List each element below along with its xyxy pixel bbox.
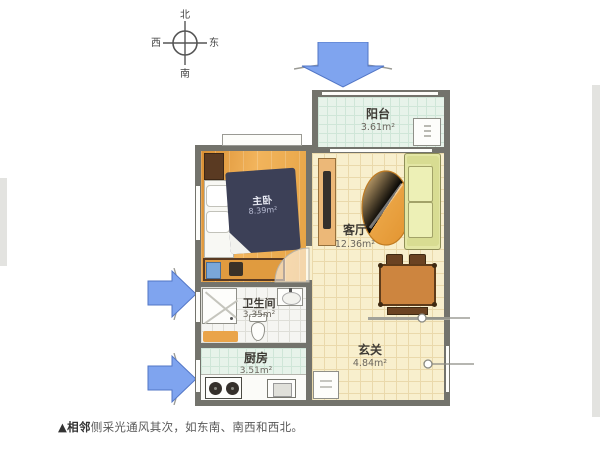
dresser-item-dark [229,262,243,276]
cabinet-mark [320,380,332,382]
wind-arrow-right-icon [146,353,200,405]
compass-south-label: 南 [180,67,190,80]
balcony-east-wall [444,90,450,153]
pillow [206,211,230,233]
table-knob [432,263,437,268]
table-knob [378,263,383,268]
foyer-label: 玄关 [340,344,400,357]
sofa-cushion [408,202,433,238]
bathroom-label: 卫生间 [230,297,288,310]
caption-text: ▲相邻侧采光通风其次，如东南、南西和西北。 [58,419,303,435]
caption-bold: 相邻 [67,420,91,434]
caption-rest: 侧采光通风其次，如东南、南西和西北。 [91,420,303,434]
bath-mat [203,331,238,342]
bathroom-area: 3.35m² [230,310,288,320]
compass-west-label: 西 [151,38,161,49]
kitchen-window [196,360,200,392]
burner [226,382,239,395]
floorplan-image: 北 南 东 西 主卧 [0,0,600,450]
bed-duvet: 主卧 8.39m² [225,168,301,255]
page-edge-right [592,85,600,417]
burner [209,382,222,395]
bathroom-window [196,292,200,322]
nightstand [204,153,224,180]
south-outer-wall [195,400,450,406]
door-swing-arc-icon [270,244,312,284]
compass-east-label: 东 [209,36,219,49]
washer-mark [424,125,431,127]
sofa [404,153,441,250]
kitchen-label: 厨房 [230,352,282,365]
bathroom-kitchen-wall [195,343,306,348]
washer-mark [424,135,431,137]
compass-icon: 北 南 东 西 [148,6,222,80]
washer-mark [424,130,431,132]
cabinet-mark [320,386,332,388]
foyer-area: 4.84m² [340,359,400,369]
shoe-cabinet [313,371,339,399]
compass-north-label: 北 [180,9,190,21]
blanket-fold [227,229,253,254]
tv [323,171,331,229]
dresser-item-blue [206,262,221,279]
sofa-armrest [407,156,438,164]
balcony-window [322,92,438,95]
balcony-area: 3.61m² [338,123,418,133]
bedroom-west-window [196,186,200,240]
table-knob [432,302,437,307]
sink-tap [289,288,292,292]
living-room-area: 12.36m² [320,240,390,250]
sink-basin [273,383,292,397]
caption-marker: ▲ [58,420,67,434]
balcony-label: 阳台 [338,108,418,121]
wind-arrow-right-icon [146,268,200,320]
sofa-cushion [408,166,433,202]
balcony-west-wall [312,90,318,153]
bedroom-bay-window [222,134,302,146]
kitchen-sink [267,379,296,398]
sofa-armrest [407,238,438,246]
leader-callouts [414,310,480,372]
table-knob [378,302,383,307]
balcony-sliding-door [330,149,432,152]
stove [205,377,242,399]
wind-arrow-down-icon [294,42,394,90]
kitchen-area: 3.51m² [230,366,282,376]
dining-table [379,264,436,306]
living-room-label: 客厅 [320,224,390,237]
page-edge-left [0,178,7,266]
